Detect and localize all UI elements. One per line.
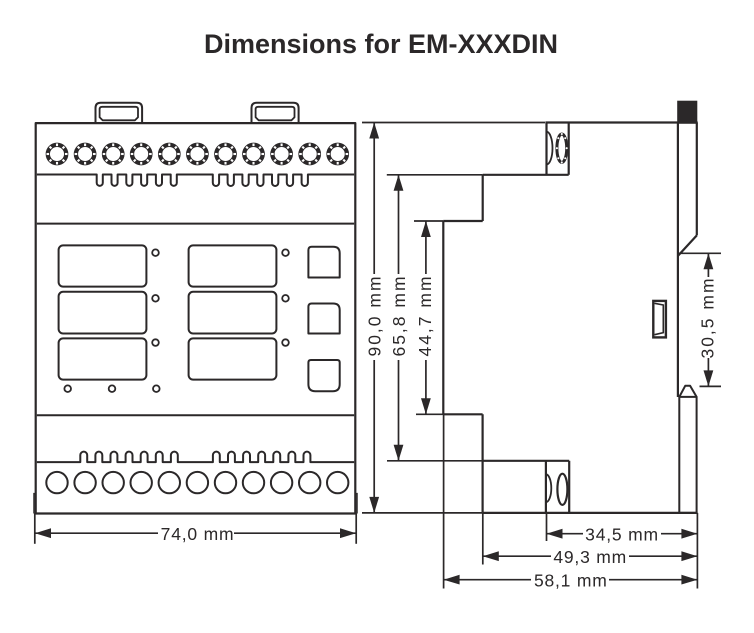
svg-text:34,5 mm: 34,5 mm xyxy=(585,524,659,544)
svg-text:90,0 mm: 90,0 mm xyxy=(365,274,385,356)
svg-text:30,5 mm: 30,5 mm xyxy=(697,276,717,358)
svg-text:58,1 mm: 58,1 mm xyxy=(534,570,608,590)
svg-text:65,8 mm: 65,8 mm xyxy=(389,274,409,356)
svg-text:Dimensions for EM-XXXDIN: Dimensions for EM-XXXDIN xyxy=(204,29,558,59)
svg-text:49,3 mm: 49,3 mm xyxy=(553,547,627,567)
svg-text:44,7 mm: 44,7 mm xyxy=(415,274,435,356)
svg-text:74,0 mm: 74,0 mm xyxy=(161,524,235,544)
